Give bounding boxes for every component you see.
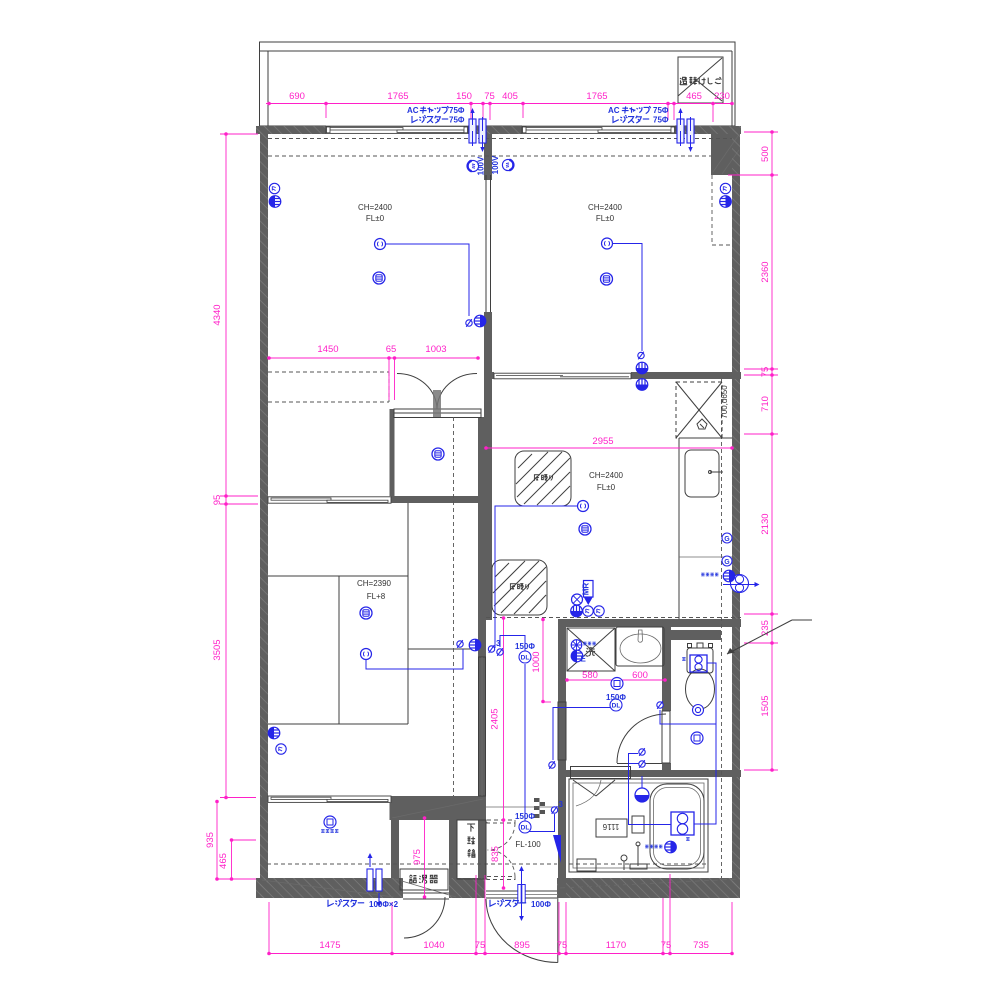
svg-text:230: 230 bbox=[714, 91, 730, 102]
svg-text:600: 600 bbox=[632, 670, 648, 681]
svg-text:150: 150 bbox=[456, 91, 472, 102]
svg-text:CH=2400: CH=2400 bbox=[588, 203, 623, 212]
svg-text:710: 710 bbox=[760, 396, 771, 412]
svg-text:1450: 1450 bbox=[317, 344, 338, 355]
svg-text:735: 735 bbox=[693, 940, 709, 951]
svg-text:3: 3 bbox=[559, 800, 564, 809]
svg-text:150Φ: 150Φ bbox=[515, 812, 535, 821]
svg-text:FL+8: FL+8 bbox=[367, 592, 386, 601]
svg-text:100Φ×2: 100Φ×2 bbox=[369, 900, 399, 909]
svg-text:2360: 2360 bbox=[760, 261, 771, 282]
svg-text:75: 75 bbox=[760, 367, 771, 378]
svg-text:75: 75 bbox=[557, 940, 568, 951]
svg-text:MR: MR bbox=[582, 583, 591, 596]
svg-text:835: 835 bbox=[490, 846, 501, 862]
svg-text:2405: 2405 bbox=[490, 708, 501, 729]
svg-text:500: 500 bbox=[760, 146, 771, 162]
svg-text:65: 65 bbox=[386, 344, 397, 355]
svg-text:75: 75 bbox=[475, 940, 486, 951]
svg-text:1040: 1040 bbox=[423, 940, 444, 951]
svg-text:935: 935 bbox=[205, 832, 216, 848]
svg-text:AC: AC bbox=[608, 106, 620, 115]
svg-text:FL±0: FL±0 bbox=[597, 483, 616, 492]
svg-text:405: 405 bbox=[502, 91, 518, 102]
svg-text:1765: 1765 bbox=[387, 91, 408, 102]
svg-text:150Φ: 150Φ bbox=[515, 642, 535, 651]
svg-text:FL-100: FL-100 bbox=[515, 840, 541, 849]
svg-text:1000: 1000 bbox=[531, 651, 542, 672]
svg-text:1003: 1003 bbox=[425, 344, 446, 355]
svg-text:CH=2400: CH=2400 bbox=[589, 471, 624, 480]
svg-text:100V: 100V bbox=[477, 156, 486, 175]
svg-text:2130: 2130 bbox=[760, 513, 771, 534]
svg-text:4340: 4340 bbox=[212, 304, 223, 325]
svg-text:95: 95 bbox=[212, 495, 223, 506]
svg-text:100Φ: 100Φ bbox=[531, 900, 551, 909]
svg-text:1116: 1116 bbox=[602, 822, 619, 831]
svg-text:75Φ: 75Φ bbox=[449, 116, 465, 125]
svg-text:1765: 1765 bbox=[586, 91, 607, 102]
svg-text:100V: 100V bbox=[491, 155, 500, 174]
svg-text:1170: 1170 bbox=[606, 940, 626, 951]
svg-text:75: 75 bbox=[661, 940, 672, 951]
svg-text:AC: AC bbox=[407, 106, 419, 115]
svg-text:3505: 3505 bbox=[212, 639, 223, 660]
svg-text:CH=2390: CH=2390 bbox=[357, 579, 392, 588]
svg-text:75Φ: 75Φ bbox=[653, 106, 669, 115]
svg-text:700,d650: 700,d650 bbox=[720, 385, 729, 419]
svg-text:580: 580 bbox=[582, 670, 598, 681]
svg-text:75Φ: 75Φ bbox=[653, 116, 669, 125]
svg-text:2955: 2955 bbox=[592, 436, 613, 447]
svg-text:1505: 1505 bbox=[760, 695, 771, 716]
svg-text:690: 690 bbox=[289, 91, 305, 102]
svg-text:150Φ: 150Φ bbox=[606, 693, 626, 702]
svg-text:1475: 1475 bbox=[319, 940, 340, 951]
svg-text:E: E bbox=[581, 655, 587, 664]
svg-text:465: 465 bbox=[686, 91, 702, 102]
svg-text:75: 75 bbox=[484, 91, 495, 102]
svg-text:895: 895 bbox=[514, 940, 530, 951]
svg-text:FL±0: FL±0 bbox=[596, 214, 615, 223]
svg-text:FL±0: FL±0 bbox=[366, 214, 385, 223]
svg-text:465: 465 bbox=[218, 853, 229, 869]
svg-text:975: 975 bbox=[412, 849, 423, 865]
svg-text:75Φ: 75Φ bbox=[449, 106, 465, 115]
svg-text:CH=2400: CH=2400 bbox=[358, 203, 393, 212]
